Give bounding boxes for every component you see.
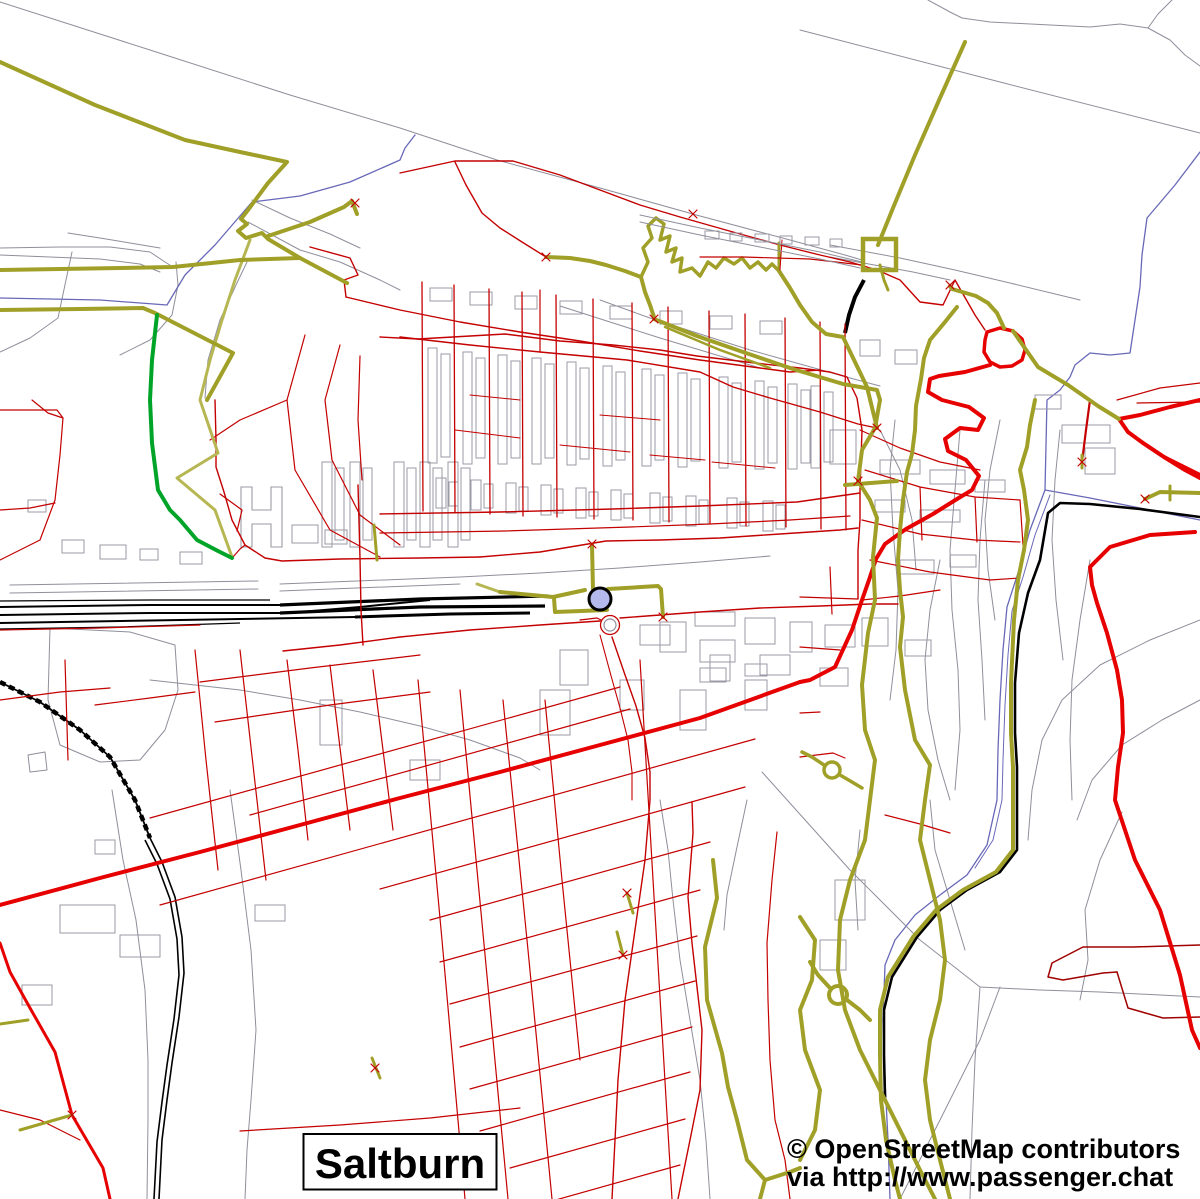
svg-text:Saltburn: Saltburn (315, 1140, 485, 1187)
svg-text:via http://www.passenger.chat: via http://www.passenger.chat (787, 1162, 1173, 1192)
svg-text:© OpenStreetMap contributors: © OpenStreetMap contributors (787, 1134, 1180, 1164)
